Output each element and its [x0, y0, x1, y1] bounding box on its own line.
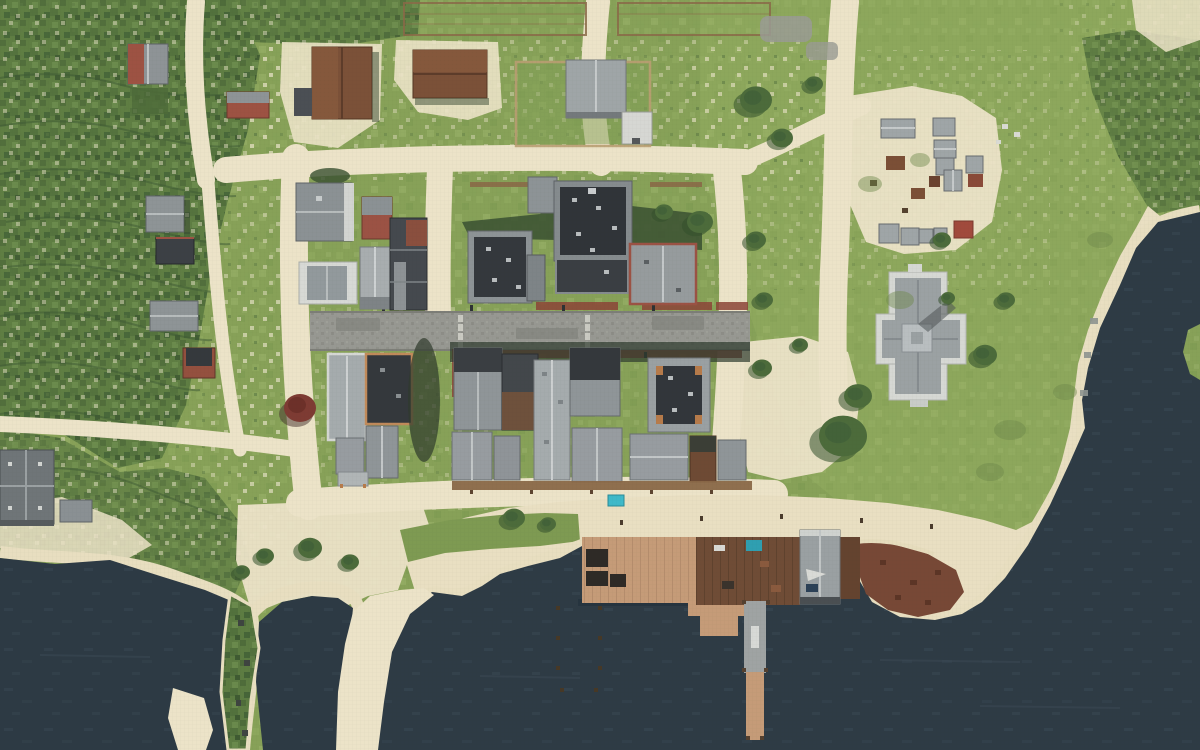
scene-root: [0, 0, 1200, 750]
screenshot-stage: [0, 0, 1200, 750]
pixel-grid-overlay: [0, 0, 1200, 750]
minecraft-aerial-map-viewport[interactable]: [0, 0, 1200, 750]
